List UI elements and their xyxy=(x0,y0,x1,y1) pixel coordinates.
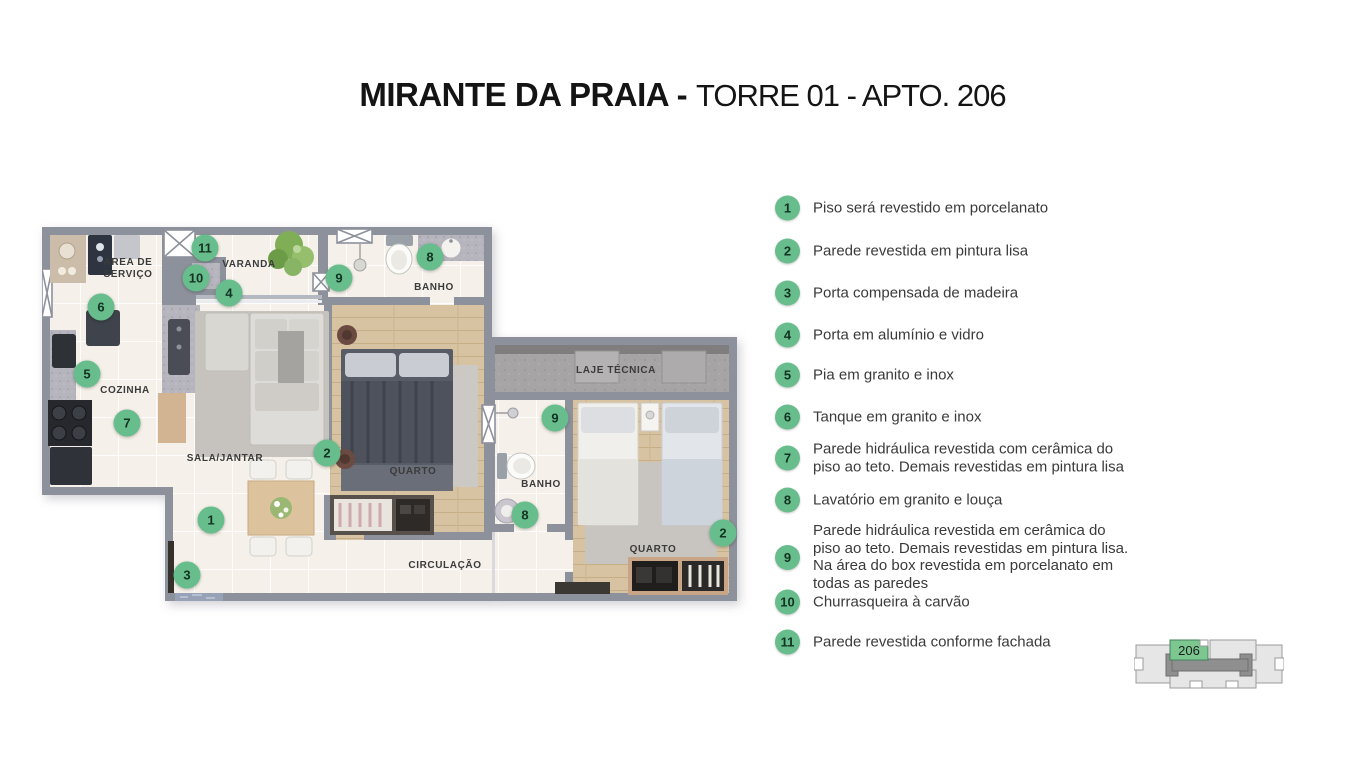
legend-number-badge: 4 xyxy=(775,323,800,348)
plan-marker-1: 1 xyxy=(198,507,225,534)
plan-marker-11: 11 xyxy=(192,235,219,262)
legend-number-badge: 10 xyxy=(775,590,800,615)
plan-marker-6: 6 xyxy=(88,294,115,321)
footprint-notch xyxy=(1190,681,1202,688)
legend-item-11: 11Parede revestida conforme fachada xyxy=(775,630,1051,655)
legend-item-7: 7Parede hidráulica revestida com cerâmic… xyxy=(775,441,1124,476)
legend-item-6: 6Tanque em granito e inox xyxy=(775,405,981,430)
room-label: SALA/JANTAR xyxy=(187,453,263,465)
plan-marker-7: 7 xyxy=(114,410,141,437)
legend-item-text: Parede revestida em pintura lisa xyxy=(813,242,1028,260)
room-label: ÁREA DE SERVIÇO xyxy=(103,257,152,281)
legend-number-badge: 6 xyxy=(775,405,800,430)
legend-item-1: 1Piso será revestido em porcelanato xyxy=(775,196,1048,221)
room-label: QUARTO xyxy=(390,466,437,478)
legend-item-text: Parede revestida conforme fachada xyxy=(813,633,1051,651)
legend-item-8: 8Lavatório em granito e louça xyxy=(775,488,1002,513)
plan-marker-5: 5 xyxy=(74,361,101,388)
floor-plan-overlay: ÁREA DE SERVIÇOVARANDABANHOCOZINHASALA/J… xyxy=(42,227,737,601)
room-label: LAJE TÉCNICA xyxy=(576,365,656,377)
footprint-notch xyxy=(1200,640,1208,646)
plan-marker-4: 4 xyxy=(216,280,243,307)
room-label: QUARTO xyxy=(630,544,677,556)
footprint-notch xyxy=(1275,658,1284,670)
plan-marker-2: 2 xyxy=(710,520,737,547)
legend-item-text: Porta em alumínio e vidro xyxy=(813,326,984,344)
room-label: VARANDA xyxy=(222,259,275,271)
legend-item-text: Piso será revestido em porcelanato xyxy=(813,199,1048,217)
legend-item-text: Pia em granito e inox xyxy=(813,366,954,384)
room-label: CIRCULAÇÃO xyxy=(408,560,481,572)
legend-item-10: 10Churrasqueira à carvão xyxy=(775,590,970,615)
plan-marker-2: 2 xyxy=(314,440,341,467)
floor-plan: ÁREA DE SERVIÇOVARANDABANHOCOZINHASALA/J… xyxy=(42,227,737,601)
plan-marker-10: 10 xyxy=(183,265,210,292)
legend-item-text: Lavatório em granito e louça xyxy=(813,491,1002,509)
title-project-name: MIRANTE DA PRAIA - xyxy=(359,76,687,113)
legend: 1Piso será revestido em porcelanato2Pare… xyxy=(775,0,1145,680)
plan-marker-9: 9 xyxy=(542,405,569,432)
legend-number-badge: 7 xyxy=(775,446,800,471)
room-label: BANHO xyxy=(414,282,454,294)
legend-item-5: 5Pia em granito e inox xyxy=(775,363,954,388)
plan-marker-8: 8 xyxy=(512,502,539,529)
room-label: BANHO xyxy=(521,479,561,491)
legend-item-9: 9Parede hidráulica revestida em cerâmica… xyxy=(775,522,1128,592)
footprint-unit-label: 206 xyxy=(1178,643,1200,658)
legend-item-text: Porta compensada de madeira xyxy=(813,284,1018,302)
legend-number-badge: 8 xyxy=(775,488,800,513)
footprint-notch xyxy=(1134,658,1143,670)
room-label: COZINHA xyxy=(100,385,150,397)
legend-item-3: 3Porta compensada de madeira xyxy=(775,281,1018,306)
plan-marker-9: 9 xyxy=(326,265,353,292)
legend-item-4: 4Porta em alumínio e vidro xyxy=(775,323,984,348)
building-footprint: 206 xyxy=(1134,628,1284,692)
legend-number-badge: 2 xyxy=(775,239,800,264)
footprint-notch xyxy=(1226,681,1238,688)
legend-item-text: Tanque em granito e inox xyxy=(813,408,981,426)
legend-item-2: 2Parede revestida em pintura lisa xyxy=(775,239,1028,264)
legend-number-badge: 11 xyxy=(775,630,800,655)
legend-number-badge: 1 xyxy=(775,196,800,221)
legend-number-badge: 3 xyxy=(775,281,800,306)
plan-marker-8: 8 xyxy=(417,244,444,271)
legend-number-badge: 9 xyxy=(775,545,800,570)
legend-item-text: Parede hidráulica revestida com cerâmica… xyxy=(813,441,1124,476)
legend-item-text: Churrasqueira à carvão xyxy=(813,593,970,611)
plan-marker-3: 3 xyxy=(174,562,201,589)
page-title: MIRANTE DA PRAIA - TORRE 01 - APTO. 206 xyxy=(0,76,1365,114)
legend-number-badge: 5 xyxy=(775,363,800,388)
legend-item-text: Parede hidráulica revestida em cerâmica … xyxy=(813,522,1128,592)
